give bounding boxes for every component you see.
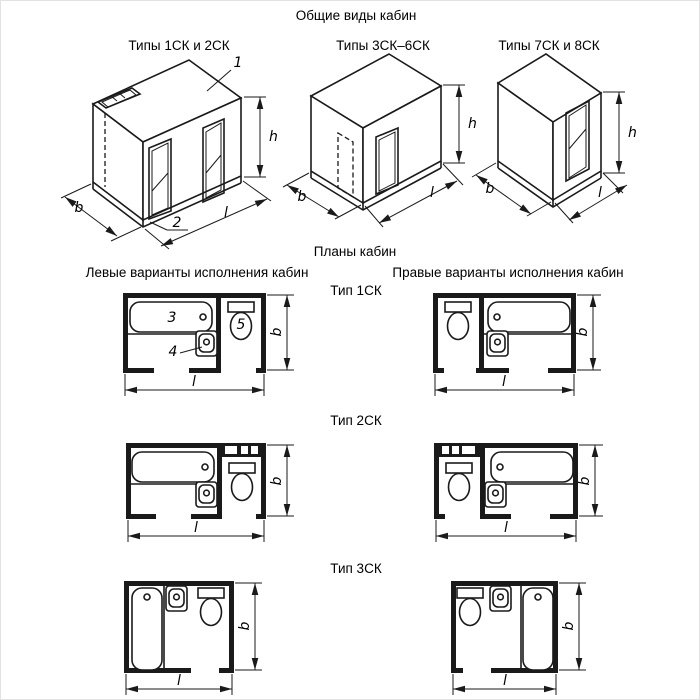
callout-number: 2 <box>173 215 182 231</box>
bottom-wall-segment <box>550 514 578 519</box>
bottom-wall-segment <box>451 668 463 673</box>
toilet-icon <box>198 588 224 626</box>
dim-label-h: h <box>269 129 278 145</box>
callout-number: 1 <box>234 55 243 71</box>
right-wall <box>261 443 266 519</box>
dim-label-b: b <box>575 327 591 336</box>
dim-label-b: b <box>269 327 285 336</box>
dimension-h: h <box>603 92 637 173</box>
bottom-wall-segment <box>126 514 156 519</box>
bathtub-icon <box>488 302 570 332</box>
washbasin-icon <box>166 586 187 611</box>
dim-label-b: b <box>75 200 84 216</box>
dimension-b: b <box>267 445 294 516</box>
left-wall <box>126 443 131 519</box>
bottom-wall-segment <box>480 514 511 519</box>
figure-page: Общие виды кабин Типы 1СК и 2СК Типы 3СК… <box>0 0 700 700</box>
bottom-wall-segment <box>191 514 222 519</box>
bathtub-icon <box>523 588 553 670</box>
technical-drawing: 1 2 h b l <box>1 1 700 700</box>
right-wall <box>261 293 266 373</box>
bathtub-icon <box>491 452 573 482</box>
bottom-wall-segment <box>548 368 576 373</box>
dim-label-b: b <box>298 189 307 205</box>
plan-1sk-left: 3 4 5 b l <box>123 293 294 396</box>
dim-label-l: l <box>598 185 602 201</box>
dim-label-l: l <box>194 520 198 536</box>
top-wall <box>433 293 576 298</box>
dim-label-l: l <box>224 205 228 221</box>
washbasin-icon <box>196 482 217 507</box>
bottom-wall-segment <box>219 668 234 673</box>
dim-label-b: b <box>237 621 253 630</box>
left-wall <box>124 581 129 673</box>
toilet-icon <box>446 463 472 501</box>
left-wall <box>451 581 456 673</box>
dim-label-b: b <box>577 476 593 485</box>
toilet-icon <box>457 588 483 626</box>
plan-3sk-right: b l <box>451 581 586 695</box>
dim-label-b: b <box>561 621 577 630</box>
callout-number: 4 <box>169 344 178 360</box>
dim-label-h: h <box>468 116 477 132</box>
dimension-b: b <box>559 583 586 670</box>
dimension-h: h <box>443 85 477 163</box>
bathtub-icon <box>132 452 214 482</box>
dimension-l: l <box>436 520 576 542</box>
iso-view-types-1sk-2sk: 1 2 h b l <box>61 55 278 249</box>
dimension-l: l <box>125 374 264 396</box>
partition-wall <box>479 297 484 368</box>
bottom-wall-segment <box>434 514 445 519</box>
bottom-wall-segment <box>476 368 509 373</box>
bottom-wall-segment <box>256 514 266 519</box>
washbasin-icon <box>487 331 508 356</box>
callout-number: 3 <box>168 310 177 326</box>
washbasin-icon <box>485 482 506 507</box>
top-wall <box>123 293 266 298</box>
dimension-l: l <box>128 520 264 542</box>
iso-view-types-3sk-6sk: h b l <box>283 54 477 227</box>
dim-label-l: l <box>503 673 507 689</box>
left-wall <box>123 293 128 373</box>
plan-1sk-right: b l <box>433 293 601 396</box>
bottom-wall-segment <box>433 368 444 373</box>
vent-block-icon <box>222 443 261 457</box>
bottom-wall-segment <box>189 368 221 373</box>
bottom-wall-segment <box>256 368 266 373</box>
dim-label-l: l <box>502 374 506 390</box>
plan-2sk-left: b l <box>126 443 294 542</box>
right-wall <box>229 581 234 673</box>
dimension-b: b <box>267 295 294 370</box>
dimension-b: b <box>235 583 262 670</box>
left-wall <box>433 293 438 373</box>
dim-label-l: l <box>192 374 196 390</box>
dim-label-b: b <box>269 476 285 485</box>
dimension-b: b <box>577 445 603 516</box>
left-wall <box>434 443 439 519</box>
dim-label-l: l <box>504 520 508 536</box>
dimension-l: l <box>453 673 556 695</box>
dim-label-l: l <box>177 673 181 689</box>
iso-view-types-7sk-8sk: h b l <box>472 54 637 223</box>
bathtub-icon <box>132 588 162 670</box>
dimension-h: h <box>244 97 278 177</box>
dim-label-l: l <box>430 185 434 201</box>
dim-label-b: b <box>486 181 495 197</box>
washbasin-icon <box>196 331 217 356</box>
dimension-b: b <box>575 295 601 370</box>
callout-number: 5 <box>237 317 246 333</box>
bottom-wall-segment <box>123 368 154 373</box>
toilet-icon <box>445 302 471 340</box>
dimension-l: l <box>126 673 232 695</box>
toilet-icon <box>229 463 255 501</box>
dim-label-h: h <box>628 125 637 141</box>
plan-2sk-right: b l <box>434 443 603 542</box>
plan-3sk-left: b l <box>124 581 262 695</box>
washbasin-icon <box>490 586 511 611</box>
vent-block-icon <box>439 443 480 457</box>
dimension-l: l <box>435 374 574 396</box>
